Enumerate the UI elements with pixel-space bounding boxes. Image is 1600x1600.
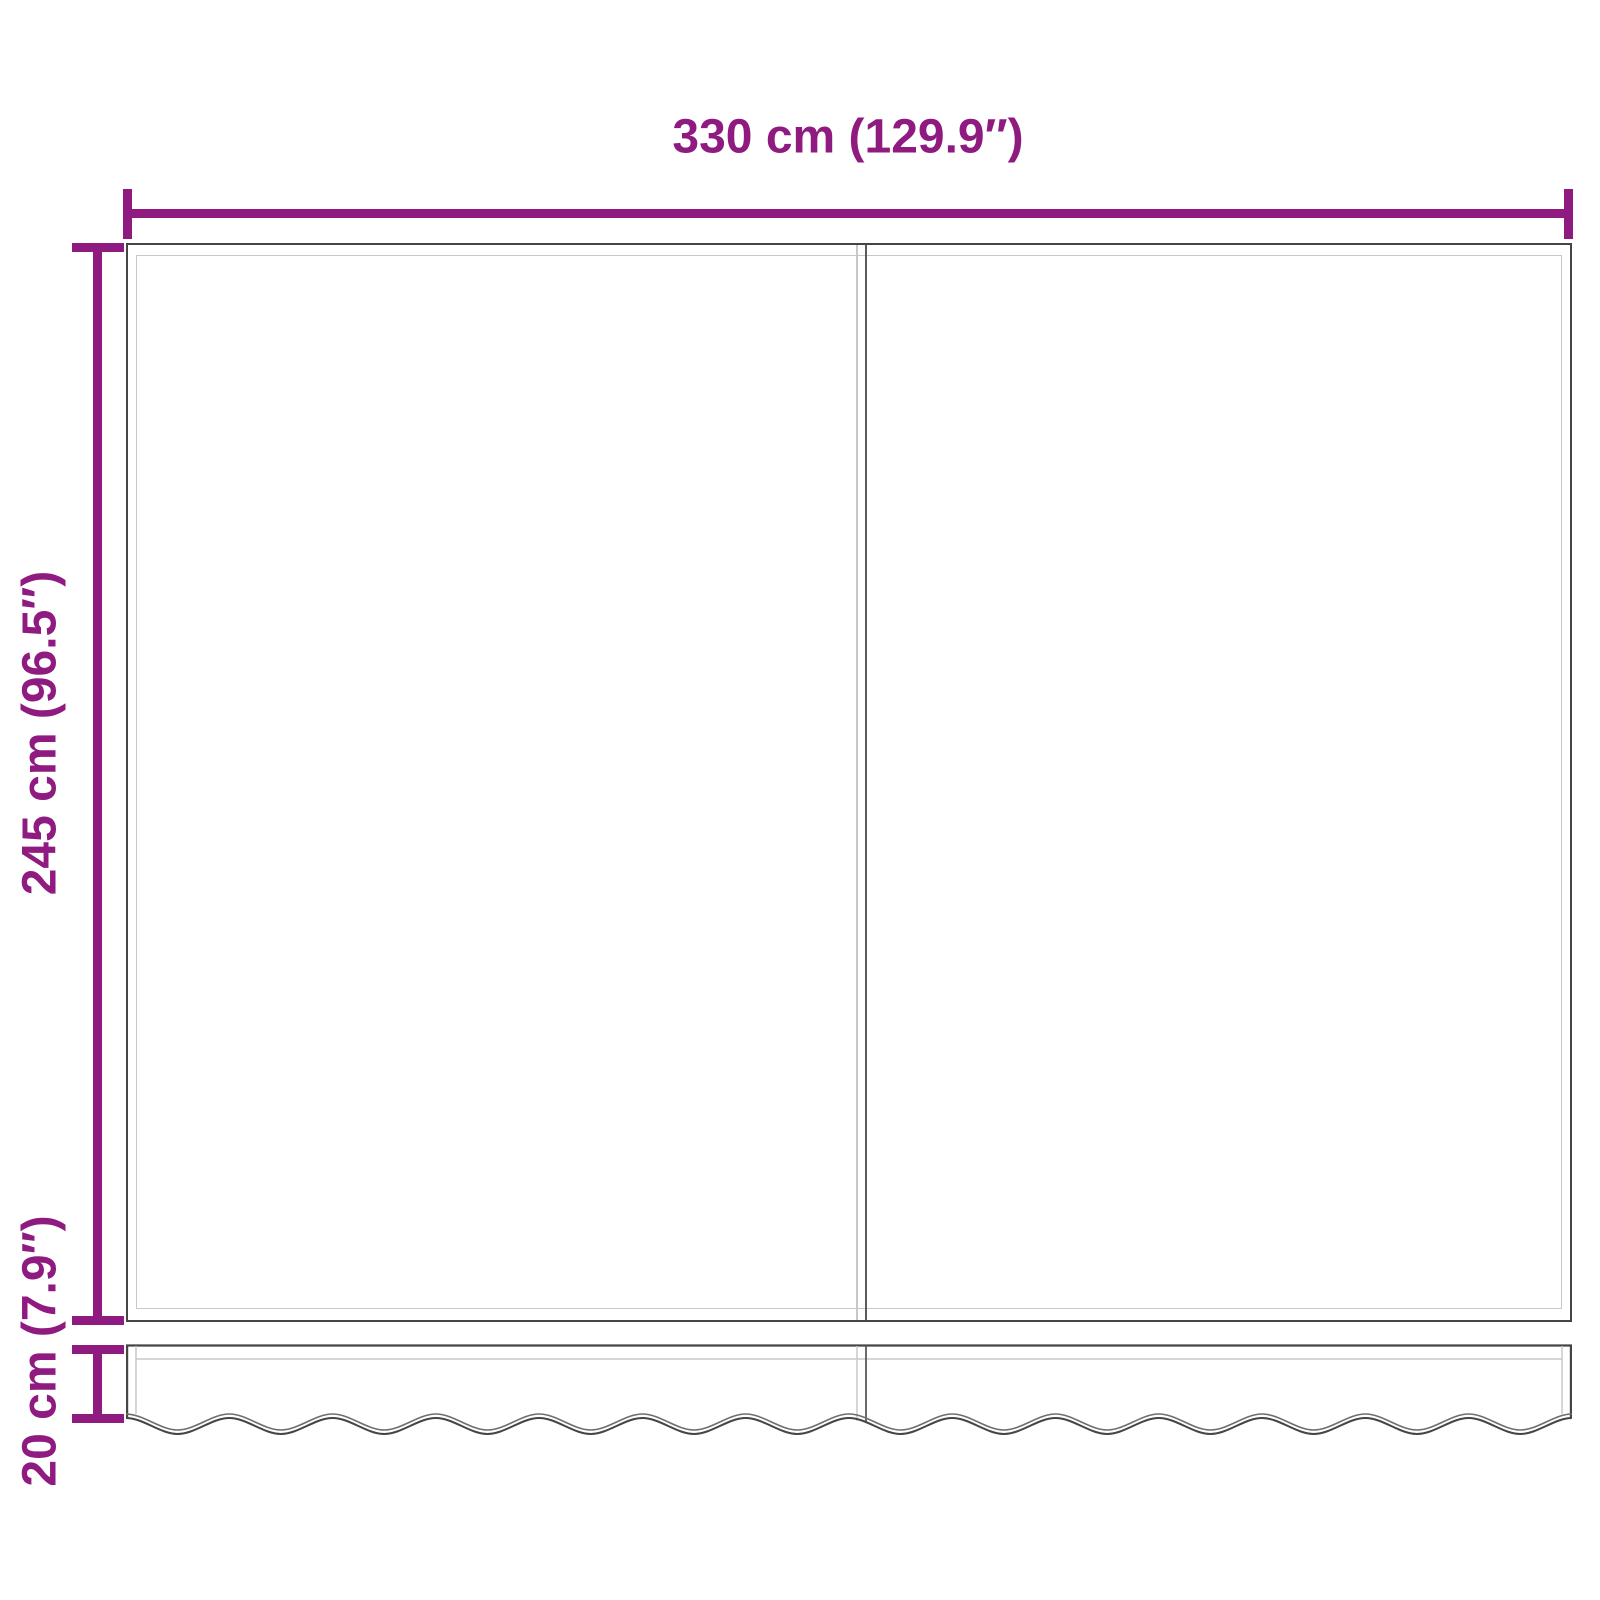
valance-dimension-label: 20 cm (7.9″) <box>13 1215 68 1486</box>
awning-fabric-panel-inner-outline <box>136 255 1562 1309</box>
valance-dimension-bottom-tick <box>72 1414 124 1423</box>
dimension-diagram: 330 cm (129.9″) 245 cm (96.5″) 20 cm (7.… <box>0 0 1600 1600</box>
height-dimension-line <box>93 247 102 1320</box>
width-dimension-right-tick <box>1564 189 1573 239</box>
valance-wave-lower <box>126 1418 1572 1434</box>
valance-wave-upper <box>126 1414 1572 1430</box>
width-dimension-line <box>127 209 1568 218</box>
panel-center-seam-light <box>856 245 858 1320</box>
height-dimension-label: 245 cm (96.5″) <box>13 571 68 896</box>
panel-center-seam-dark <box>865 245 867 1320</box>
valance-strip <box>126 1344 1572 1454</box>
height-dimension-bottom-tick <box>72 1316 124 1325</box>
width-dimension-label: 330 cm (129.9″) <box>672 110 1023 165</box>
valance-dimension-line <box>93 1350 102 1418</box>
